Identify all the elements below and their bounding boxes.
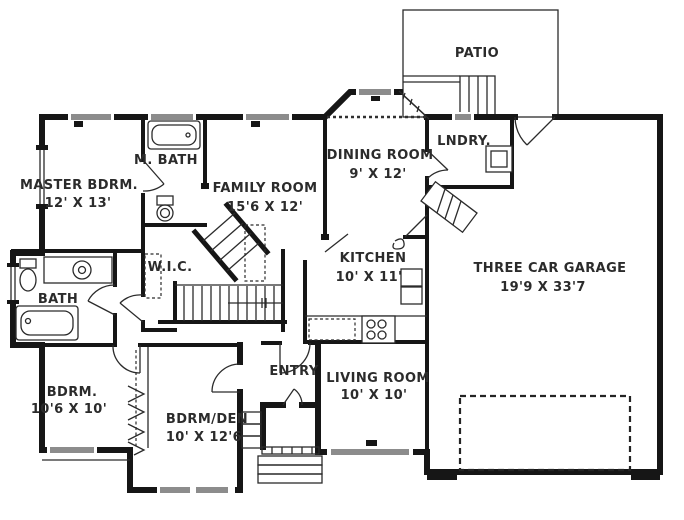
window-bdrm-bottom bbox=[50, 447, 94, 453]
dishwasher-icon bbox=[309, 319, 355, 340]
room-label-family-room: FAMILY ROOM bbox=[213, 181, 318, 196]
room-dims-master-bdrm: 12' X 13' bbox=[45, 196, 112, 211]
room-dims-kitchen: 10' X 11' bbox=[336, 270, 403, 285]
room-label-patio: PATIO bbox=[455, 46, 499, 61]
front-steps-icon bbox=[258, 456, 322, 483]
floor-plan: PATIO MASTER BDRM. 12' X 13' M. BATH FAM… bbox=[0, 0, 684, 520]
window-living-bottom bbox=[331, 449, 409, 455]
bath-tub-icon bbox=[16, 306, 78, 340]
room-label-master-bdrm: MASTER BDRM. bbox=[20, 178, 138, 193]
room-label-m-bath: M. BATH bbox=[134, 153, 198, 168]
water-heater-icon bbox=[421, 182, 477, 232]
window-master-top bbox=[71, 114, 111, 120]
floor-plan-canvas: PATIO MASTER BDRM. 12' X 13' M. BATH FAM… bbox=[0, 0, 684, 520]
room-dims-dining-room: 9' X 12' bbox=[349, 167, 406, 182]
room-dims-garage: 19'9 X 33'7 bbox=[500, 280, 586, 295]
bath-door-icon bbox=[88, 285, 115, 315]
bath-toilet-icon bbox=[20, 259, 36, 291]
room-dims-bdrm-den: 10' X 12'6 bbox=[166, 430, 242, 445]
bdrmden-door-icon bbox=[212, 364, 240, 392]
window-family-top bbox=[246, 114, 289, 120]
bath-vanity-icon bbox=[44, 257, 112, 283]
window-bdrmden-2 bbox=[196, 487, 228, 493]
room-label-bdrm: BDRM. bbox=[47, 385, 98, 400]
stove-icon bbox=[362, 316, 395, 343]
winder-stairs-icon bbox=[195, 205, 267, 279]
room-label-bdrm-den: BDRM/DEN bbox=[166, 412, 248, 427]
patio-steps-icon bbox=[460, 76, 495, 117]
room-label-living-room: LIVING ROOM bbox=[326, 371, 430, 386]
room-label-kitchen: KITCHEN bbox=[340, 251, 407, 266]
room-label-bath: BATH bbox=[38, 292, 78, 307]
garage-pad-dashed bbox=[460, 396, 630, 470]
room-dims-living-room: 10' X 10' bbox=[341, 388, 408, 403]
master-bath-tub-icon bbox=[148, 121, 200, 149]
washer-icon bbox=[486, 146, 512, 172]
room-dims-family-room: 15'6 X 12' bbox=[227, 200, 303, 215]
patio-outline bbox=[403, 10, 558, 117]
room-label-garage: THREE CAR GARAGE bbox=[474, 261, 627, 276]
window-lndry-top bbox=[455, 114, 471, 120]
room-label-wic: W.I.C. bbox=[148, 260, 193, 275]
window-bath-left bbox=[7, 263, 19, 304]
room-labels: PATIO MASTER BDRM. 12' X 13' M. BATH FAM… bbox=[20, 46, 626, 445]
room-label-entry: ENTRY bbox=[269, 364, 319, 379]
garage-rear-door-icon bbox=[515, 117, 555, 145]
window-dining-bay bbox=[359, 89, 391, 95]
master-bath-toilet-icon bbox=[157, 196, 173, 221]
fridge-icon bbox=[401, 269, 422, 304]
room-dims-bdrm: 10'6 X 10' bbox=[31, 402, 107, 417]
room-label-dining-room: DINING ROOM bbox=[327, 148, 434, 163]
plumbing-icon bbox=[393, 239, 404, 249]
wic-door-icon bbox=[120, 295, 143, 322]
window-mbath-top bbox=[151, 114, 193, 120]
window-bdrmden-1 bbox=[160, 487, 190, 493]
room-label-lndry: LNDRY. bbox=[437, 134, 491, 149]
